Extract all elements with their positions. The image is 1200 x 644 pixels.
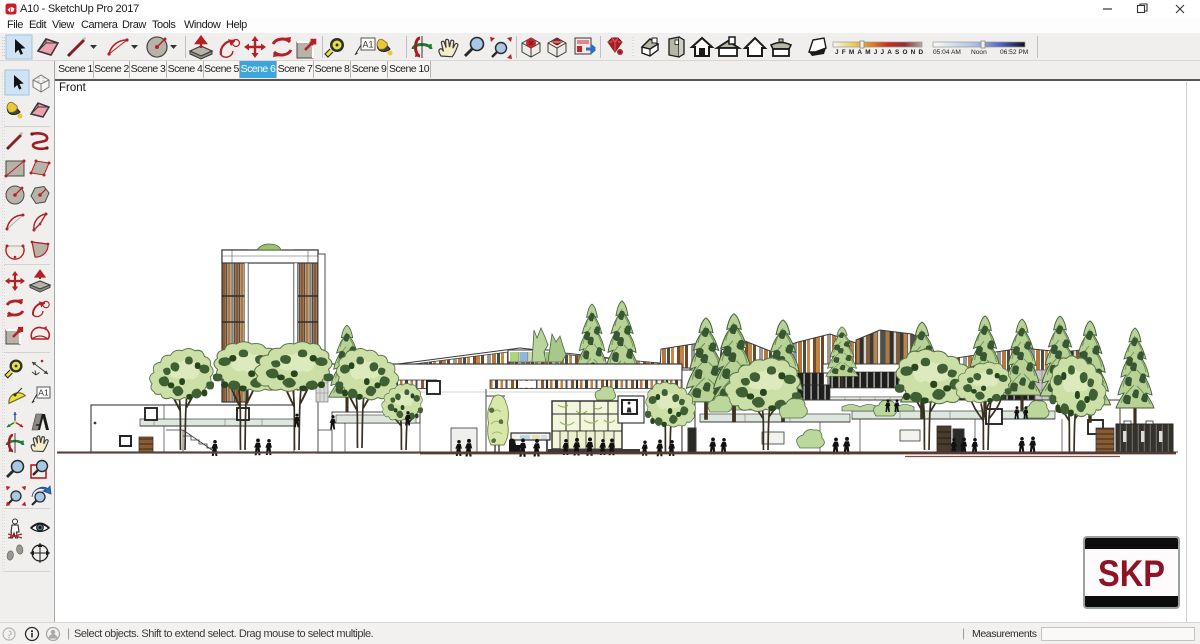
svg-text:JFMAMJJASOND: JFMAMJJASOND	[835, 49, 926, 56]
svg-text:06:52 PM: 06:52 PM	[1000, 49, 1028, 56]
svg-text:Noon: Noon	[971, 49, 987, 56]
svg-text:A1: A1	[38, 388, 49, 398]
svg-text:05:04 AM: 05:04 AM	[933, 49, 961, 56]
svg-text:A1: A1	[362, 40, 373, 50]
